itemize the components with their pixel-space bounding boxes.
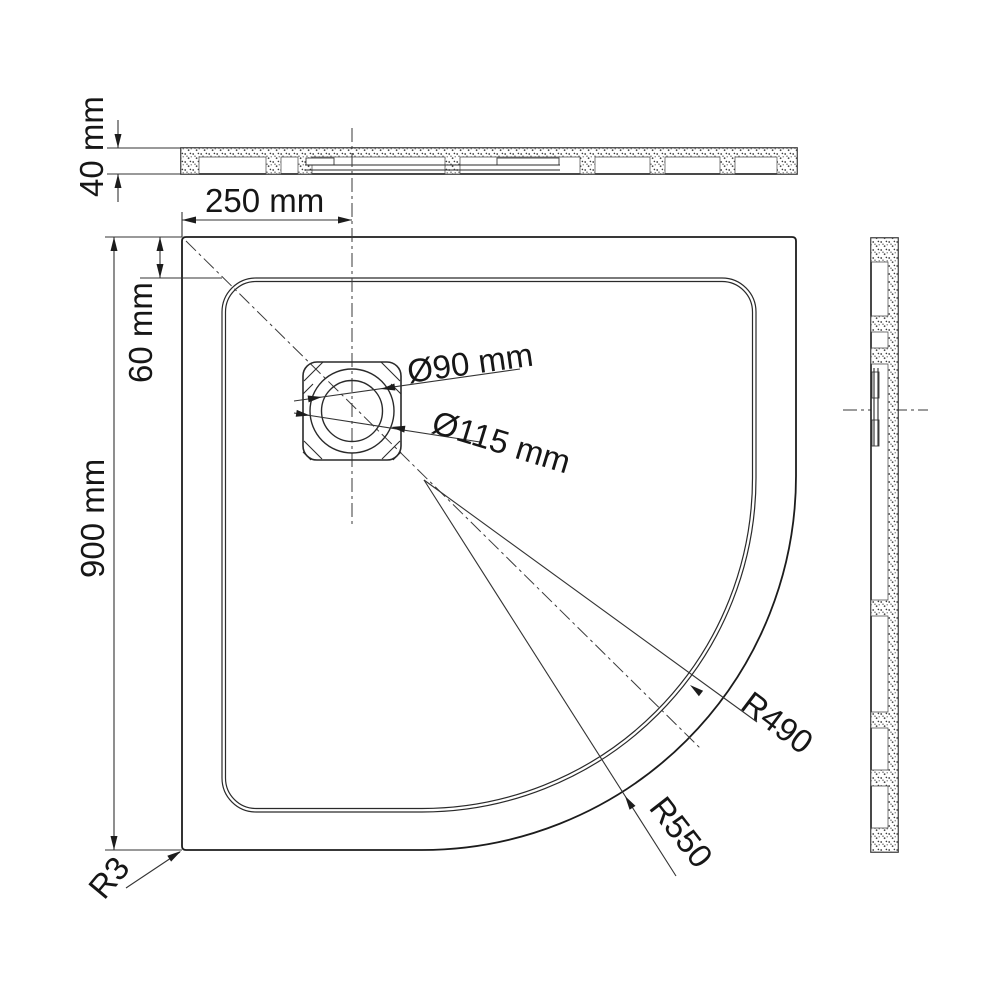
- diagonal-centerline: [186, 241, 700, 748]
- dim-40mm-label: 40 mm: [73, 96, 110, 197]
- dimension-dia115: Ø115 mm: [294, 403, 575, 480]
- dimension-60mm: 60 mm: [122, 237, 222, 383]
- dimension-dia90: Ø90 mm: [294, 336, 535, 403]
- dimension-r550: R550: [424, 480, 720, 876]
- dim-r490-label: R490: [735, 684, 820, 761]
- dimension-r3: R3: [81, 849, 181, 905]
- plan-view: [182, 128, 796, 850]
- dimension-r490: R490: [424, 480, 820, 761]
- front-section-view: [181, 148, 797, 174]
- dim-dia115-label: Ø115 mm: [428, 403, 575, 480]
- drawing-canvas: 40 mm 250 mm 900 mm 60 mm Ø90 mm Ø1: [0, 0, 1000, 1000]
- dim-900mm-label: 900 mm: [74, 459, 111, 578]
- dimension-250mm: 250 mm: [182, 182, 352, 237]
- dim-250mm-label: 250 mm: [205, 182, 324, 219]
- dimension-40mm: 40 mm: [73, 96, 181, 202]
- dim-60mm-label: 60 mm: [122, 282, 159, 383]
- side-section-view: [843, 238, 928, 852]
- dim-r550-label: R550: [642, 790, 720, 875]
- shower-tray-technical-drawing: 40 mm 250 mm 900 mm 60 mm Ø90 mm Ø1: [0, 0, 1000, 1000]
- dim-r3-label: R3: [81, 849, 136, 905]
- dim-dia90-label: Ø90 mm: [405, 336, 535, 390]
- tray-outer-edge: [182, 237, 796, 850]
